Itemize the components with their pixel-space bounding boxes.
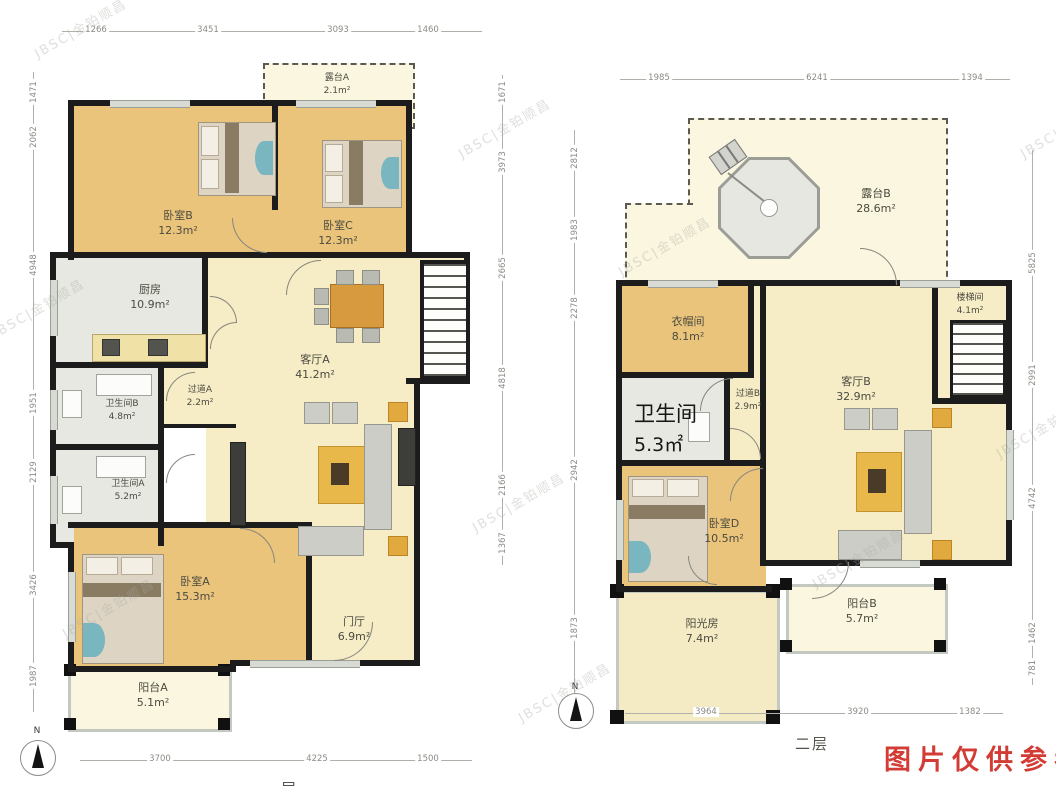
sofa <box>364 424 392 530</box>
room-name: 过道A <box>188 384 212 397</box>
room-area: 5.1m² <box>137 695 170 710</box>
armchair <box>844 408 870 430</box>
room-area: 4.1m² <box>957 305 984 318</box>
chair <box>362 328 380 343</box>
chair <box>362 270 380 285</box>
room-label-bedroom-b: 卧室B 12.3m² <box>158 208 198 239</box>
room-label-living-b: 客厅B 32.9m² <box>836 374 876 405</box>
room-area: 4.8m² <box>109 411 136 424</box>
dim-label: 4948 <box>29 252 39 278</box>
compass-needle-icon <box>570 697 582 721</box>
wall <box>56 444 164 450</box>
room-name: 露台A <box>325 72 349 85</box>
dim-label: 1500 <box>415 754 441 764</box>
room-label-bath-a: 卫生间A 5.2m² <box>111 478 144 503</box>
dimension-line <box>80 760 472 761</box>
room-name: 卧室B <box>163 208 193 223</box>
reference-note: 图片仅供参考 <box>884 738 1056 777</box>
dim-label: 1394 <box>959 73 985 83</box>
side-table <box>388 536 408 556</box>
window <box>250 660 360 668</box>
room-label-closet: 衣帽间 8.1m² <box>672 314 705 345</box>
room-name: 门厅 <box>343 614 365 629</box>
room-area: 5.7m² <box>846 611 879 626</box>
room-label-bath-b: 卫生间B 4.8m² <box>105 398 138 423</box>
room-name: 厨房 <box>139 282 161 297</box>
dim-label: 6241 <box>804 73 830 83</box>
room-name: 阳台B <box>847 596 877 611</box>
bath-sink <box>96 374 152 396</box>
dim-label: 1382 <box>957 707 983 717</box>
room-name: 卧室C <box>323 218 353 233</box>
room-area: 7.4m² <box>686 631 719 646</box>
balcony-post <box>780 578 792 590</box>
room-sunroom <box>616 590 780 724</box>
gazebo-center <box>760 199 778 217</box>
dim-label: 1460 <box>415 25 441 35</box>
staircase <box>950 320 1006 398</box>
wall <box>56 362 208 368</box>
armchair <box>304 402 330 424</box>
room-name: 卧室A <box>180 574 210 589</box>
dim-label: 2812 <box>570 145 580 171</box>
dim-label: 3451 <box>195 25 221 35</box>
wall <box>158 450 164 546</box>
sofa <box>298 526 364 556</box>
balcony-post <box>218 718 230 730</box>
balcony-post <box>934 578 946 590</box>
toilet <box>62 390 82 418</box>
dim-label: 3964 <box>693 707 719 717</box>
room-label-living-a: 客厅A 41.2m² <box>295 352 335 383</box>
toilet <box>62 486 82 514</box>
chair <box>336 270 354 285</box>
dim-label: 4742 <box>1028 485 1038 511</box>
wall <box>68 522 312 528</box>
dim-label: 1951 <box>29 390 39 416</box>
side-table <box>388 402 408 422</box>
tv-cabinet <box>230 442 246 526</box>
room-area: 5.2m² <box>115 491 142 504</box>
room-area: 41.2m² <box>295 367 335 382</box>
dim-label: 3093 <box>325 25 351 35</box>
wall <box>616 460 766 466</box>
room-area: 28.6m² <box>856 201 896 216</box>
window <box>900 280 960 288</box>
room-area: 10.9m² <box>130 297 170 312</box>
bed <box>198 122 276 196</box>
room-name: 过道B <box>736 388 760 401</box>
room-name: 衣帽间 <box>672 314 705 329</box>
sofa <box>904 430 932 534</box>
dim-label: 3426 <box>29 572 39 598</box>
window <box>50 390 58 430</box>
room-label-balcony-a: 阳台A 5.1m² <box>137 680 170 711</box>
room-label-corridor-a: 过道A 2.2m² <box>187 384 214 409</box>
room-area: 6.9m² <box>338 629 371 644</box>
dim-label: 4818 <box>498 365 508 391</box>
dim-label: 2665 <box>498 255 508 281</box>
balcony-post <box>64 718 76 730</box>
wall <box>932 398 1012 404</box>
room-label-corridor-b: 过道B 2.9m² <box>735 388 762 413</box>
window <box>648 280 718 288</box>
room-label-bedroom-d: 卧室D 10.5m² <box>704 516 744 547</box>
room-name: 卫生间 <box>634 398 697 431</box>
dim-label: 1873 <box>570 615 580 641</box>
room-area: 32.9m² <box>836 389 876 404</box>
stove <box>102 339 120 356</box>
window <box>110 100 190 108</box>
wall <box>414 378 420 666</box>
room-name: 客厅A <box>300 352 330 367</box>
room-label-terrace-a: 露台A 2.1m² <box>324 72 351 97</box>
staircase <box>420 260 470 380</box>
dim-label: 1987 <box>29 663 39 689</box>
wall <box>406 106 412 258</box>
room-area: 12.3m² <box>318 233 358 248</box>
armchair <box>332 402 358 424</box>
dim-label: 5825 <box>1028 250 1038 276</box>
tv-cabinet <box>398 428 416 486</box>
dim-label: 2129 <box>29 459 39 485</box>
wall <box>748 286 754 378</box>
room-label-balcony-b: 阳台B 5.7m² <box>846 596 879 627</box>
wall <box>1006 280 1012 566</box>
compass-icon <box>20 740 56 776</box>
dim-label: 1462 <box>1028 620 1038 646</box>
room-name: 楼梯间 <box>956 292 983 305</box>
side-table <box>932 540 952 560</box>
room-name: 露台B <box>861 186 891 201</box>
room-name: 卫生间A <box>111 478 144 491</box>
dim-label: 3973 <box>498 149 508 175</box>
room-area: 5.3㎡ <box>634 431 683 460</box>
watermark-text: JBSC|金铂顺昌 <box>468 467 568 536</box>
room-label-bedroom-a: 卧室A 15.3m² <box>175 574 215 605</box>
wall <box>158 368 164 448</box>
room-area: 2.9m² <box>735 401 762 414</box>
wall <box>616 372 754 378</box>
armchair <box>872 408 898 430</box>
wall <box>616 586 772 592</box>
room-label-foyer: 门厅 6.9m² <box>338 614 371 645</box>
room-area: 2.2m² <box>187 397 214 410</box>
chair <box>314 308 329 325</box>
wall <box>932 286 938 402</box>
room-area: 15.3m² <box>175 589 215 604</box>
sink <box>148 339 168 356</box>
dim-label: 1983 <box>570 217 580 243</box>
chair <box>336 328 354 343</box>
room-label-terrace-b: 露台B 28.6m² <box>856 186 896 217</box>
dim-label: 1671 <box>498 79 508 105</box>
room-name: 卧室D <box>709 516 739 531</box>
window <box>50 476 58 524</box>
dim-label: 2991 <box>1028 362 1038 388</box>
wall <box>68 100 74 260</box>
side-table <box>932 408 952 428</box>
wall <box>760 286 766 566</box>
room-name: 阳台A <box>138 680 168 695</box>
room-name: 阳光房 <box>686 616 719 631</box>
room-area: 2.1m² <box>324 85 351 98</box>
window <box>296 100 376 108</box>
room-label-kitchen: 厨房 10.9m² <box>130 282 170 313</box>
floor2-caption: 二层 <box>795 733 829 754</box>
dim-label: 2942 <box>570 457 580 483</box>
room-name: 客厅B <box>841 374 871 389</box>
dim-label: 781 <box>1028 658 1038 678</box>
dim-label: 1985 <box>646 73 672 83</box>
wall <box>50 542 74 548</box>
balcony-post <box>934 640 946 652</box>
dimension-line <box>625 713 1003 714</box>
dim-label: 2062 <box>29 124 39 150</box>
dining-table <box>330 284 384 328</box>
bath-sink <box>96 456 146 478</box>
balcony-post <box>610 710 624 724</box>
window <box>616 500 624 560</box>
room-area: 12.3m² <box>158 223 198 238</box>
dim-label: 3700 <box>147 754 173 764</box>
dim-label: 2278 <box>570 295 580 321</box>
dim-label: 4225 <box>304 754 330 764</box>
dim-label: 1367 <box>498 530 508 556</box>
floorplan-image: 露台A 2.1m² 卧室B 12.3m² 卧室C 12.3m² 厨房 10.9m… <box>0 0 1056 786</box>
compass-needle-icon <box>32 744 44 768</box>
room-label-bedroom-c: 卧室C 12.3m² <box>318 218 358 249</box>
balcony-post <box>780 640 792 652</box>
watermark-text: JBSC|金铂顺昌 <box>1016 93 1056 162</box>
room-label-sunroom: 阳光房 7.4m² <box>686 616 719 647</box>
floor1-caption: 一层 <box>264 778 298 786</box>
room-area: 8.1m² <box>672 329 705 344</box>
dim-label: 3920 <box>845 707 871 717</box>
bed <box>322 140 402 208</box>
dim-label: 2166 <box>498 472 508 498</box>
coffee-table-rug <box>856 452 902 512</box>
room-label-bathroom2: 卫生间 5.3㎡ <box>634 398 697 460</box>
dim-label: 1471 <box>29 79 39 105</box>
coffee-table-rug <box>318 446 366 504</box>
room-name: 卫生间B <box>105 398 138 411</box>
room-label-stair-hall: 楼梯间 4.1m² <box>956 292 983 317</box>
door-arc <box>166 454 195 483</box>
wall <box>158 424 236 428</box>
dimension-line <box>1032 150 1033 685</box>
wall <box>68 666 236 672</box>
room-area: 10.5m² <box>704 531 744 546</box>
north-label: N <box>34 726 41 736</box>
